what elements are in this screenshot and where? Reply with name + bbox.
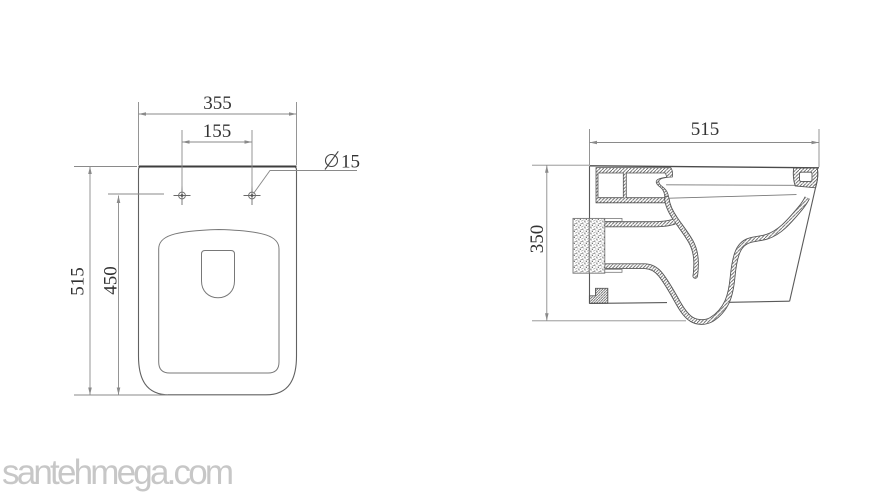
svg-text:santehmega.com: santehmega.com bbox=[2, 453, 232, 492]
svg-text:355: 355 bbox=[203, 93, 232, 114]
svg-text:450: 450 bbox=[101, 266, 122, 295]
svg-text:515: 515 bbox=[68, 267, 89, 296]
svg-text:15: 15 bbox=[341, 152, 360, 173]
svg-text:515: 515 bbox=[691, 119, 720, 140]
svg-text:350: 350 bbox=[527, 225, 548, 254]
svg-text:155: 155 bbox=[203, 121, 232, 142]
